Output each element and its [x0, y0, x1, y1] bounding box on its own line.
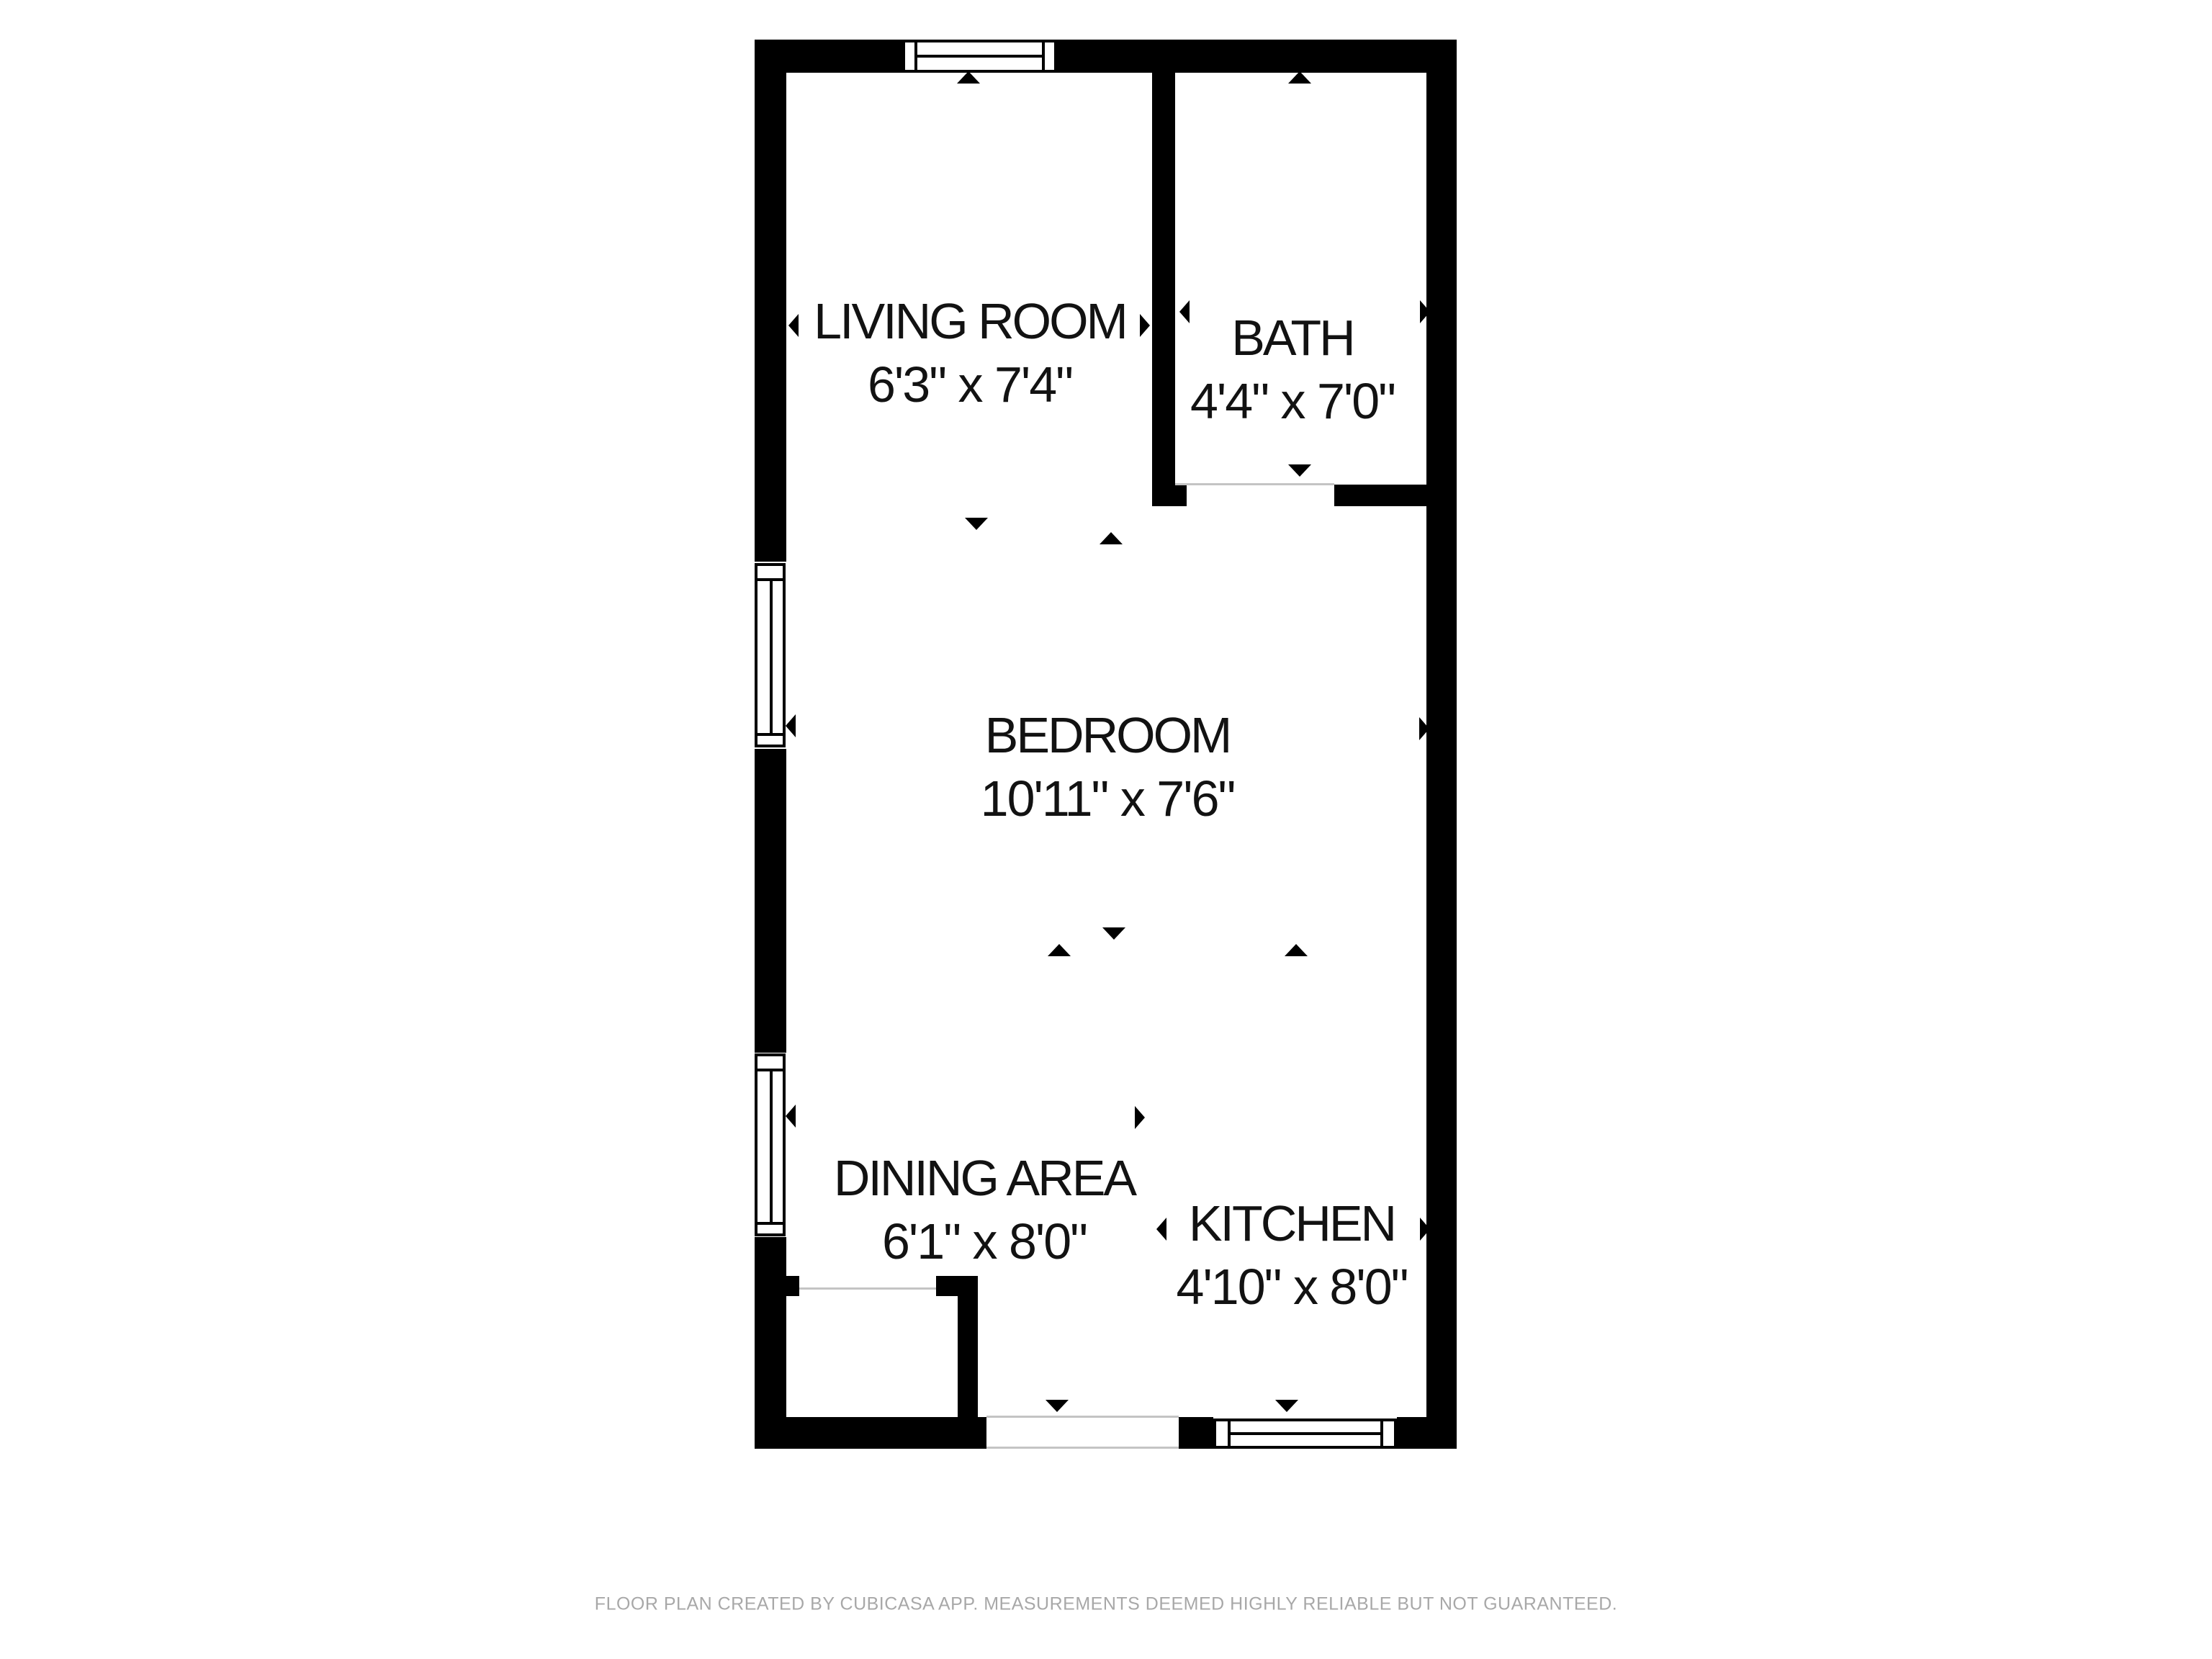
room-name: KITCHEN: [1177, 1192, 1408, 1255]
room-name: DINING AREA: [834, 1146, 1135, 1210]
window-glazing-line: [1228, 1432, 1383, 1435]
triangle-left-icon: [1156, 1218, 1166, 1241]
room-label-bath: BATH 4'4" x 7'0": [1190, 306, 1395, 433]
wall-bottom-left-segment: [755, 1417, 986, 1449]
triangle-right-icon: [1420, 1218, 1430, 1241]
closet-opening-line: [799, 1287, 936, 1290]
room-label-dining-area: DINING AREA 6'1" x 8'0": [834, 1146, 1135, 1273]
wall-divider-foot: [1152, 485, 1187, 506]
floor-plan-canvas: LIVING ROOM 6'3" x 7'4" BATH 4'4" x 7'0"…: [0, 0, 2212, 1659]
triangle-down-icon: [1288, 464, 1311, 477]
wall-top-left-segment: [755, 40, 902, 73]
wall-top-right-segment: [1057, 40, 1457, 73]
triangle-left-icon: [1179, 300, 1190, 323]
bath-door-threshold-line: [1175, 483, 1334, 485]
room-dimensions: 10'11" x 7'6": [981, 767, 1235, 830]
room-dimensions: 6'3" x 7'4": [814, 353, 1126, 416]
room-dimensions: 6'1" x 8'0": [834, 1210, 1135, 1273]
triangle-right-icon: [1140, 314, 1150, 337]
window-left-lower: [755, 1053, 786, 1236]
triangle-right-icon: [1420, 300, 1430, 323]
window-glazing-line: [770, 1069, 773, 1225]
room-label-kitchen: KITCHEN 4'10" x 8'0": [1177, 1192, 1408, 1318]
triangle-down-icon: [965, 518, 988, 530]
room-dimensions: 4'10" x 8'0": [1177, 1255, 1408, 1318]
triangle-right-icon: [1135, 1106, 1145, 1129]
triangle-left-icon: [786, 1105, 796, 1128]
room-name: BEDROOM: [981, 703, 1235, 767]
triangle-left-icon: [788, 314, 799, 337]
room-dimensions: 4'4" x 7'0": [1190, 369, 1395, 433]
triangle-right-icon: [1419, 717, 1429, 740]
window-left-upper: [755, 563, 786, 747]
room-label-living-room: LIVING ROOM 6'3" x 7'4": [814, 289, 1126, 416]
triangle-up-icon: [1048, 944, 1071, 956]
room-label-bedroom: BEDROOM 10'11" x 7'6": [981, 703, 1235, 830]
window-glazing-line: [914, 55, 1045, 58]
triangle-down-icon: [1046, 1400, 1069, 1412]
wall-right: [1426, 73, 1457, 1449]
wall-bath-bottom: [1334, 485, 1426, 506]
window-bottom: [1213, 1419, 1397, 1449]
wall-bottom-right-segment: [1397, 1417, 1457, 1449]
triangle-up-icon: [1100, 532, 1123, 544]
closet-cap-right: [936, 1276, 978, 1296]
triangle-left-icon: [786, 714, 796, 737]
triangle-up-icon: [957, 71, 980, 84]
closet-nub-left: [786, 1276, 799, 1296]
triangle-up-icon: [1285, 944, 1308, 956]
wall-left-upper-segment: [755, 73, 786, 562]
triangle-down-icon: [1275, 1400, 1298, 1412]
window-top: [902, 40, 1057, 73]
room-name: BATH: [1190, 306, 1395, 369]
footer-disclaimer: FLOOR PLAN CREATED BY CUBICASA APP. MEAS…: [595, 1594, 1617, 1615]
closet-wall-right: [958, 1296, 978, 1417]
window-glazing-line: [770, 578, 773, 736]
wall-bottom-middle-segment: [1179, 1417, 1213, 1449]
room-name: LIVING ROOM: [814, 289, 1126, 353]
wall-living-bath-divider: [1152, 73, 1175, 506]
entry-door-line-bottom: [986, 1447, 1179, 1449]
wall-left-middle-segment: [755, 749, 786, 1053]
triangle-up-icon: [1288, 71, 1311, 84]
triangle-down-icon: [1102, 927, 1125, 940]
entry-door-line-top: [986, 1416, 1179, 1418]
